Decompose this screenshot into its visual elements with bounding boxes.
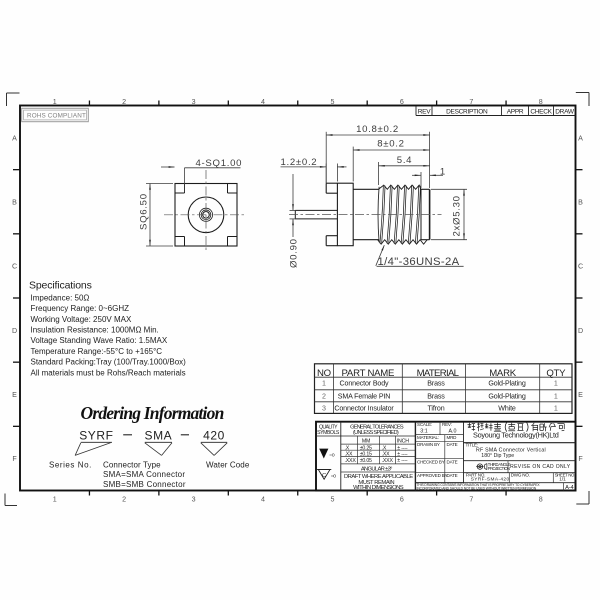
svg-text:SHEET NO.: SHEET NO. bbox=[555, 472, 575, 477]
svg-text:±0.15: ±0.15 bbox=[360, 451, 372, 457]
svg-text:Gold-Plating: Gold-Plating bbox=[488, 392, 526, 400]
svg-text:CHECKED BY: CHECKED BY bbox=[417, 459, 445, 464]
svg-text:Water Code: Water Code bbox=[206, 460, 250, 469]
svg-text:Standard Packing:Tray (100/Tra: Standard Packing:Tray (100/Tray.1000/Box… bbox=[31, 358, 187, 367]
svg-text:6: 6 bbox=[400, 496, 404, 504]
svg-text:=0: =0 bbox=[331, 473, 337, 479]
svg-text:D: D bbox=[12, 327, 17, 335]
svg-text:DRAWN BY: DRAWN BY bbox=[417, 442, 440, 447]
svg-text:.XXX: .XXX bbox=[382, 458, 394, 464]
svg-text:C: C bbox=[12, 263, 17, 271]
svg-text:APPR: APPR bbox=[507, 108, 524, 115]
svg-text:E: E bbox=[578, 391, 583, 399]
svg-text:A.0: A.0 bbox=[449, 429, 457, 435]
svg-text:REVISE ON CAD ONLY: REVISE ON CAD ONLY bbox=[510, 464, 571, 470]
svg-text:SMB=SMB Connector: SMB=SMB Connector bbox=[103, 480, 186, 489]
svg-text:8±0.2: 8±0.2 bbox=[377, 138, 404, 149]
svg-text:1: 1 bbox=[53, 496, 57, 504]
svg-text:Series No.: Series No. bbox=[49, 460, 92, 469]
svg-text:INCORPORATED AND SHOULD NOT BE: INCORPORATED AND SHOULD NOT BE USED WITH… bbox=[417, 487, 537, 491]
svg-text:SMA: SMA bbox=[144, 429, 172, 443]
svg-text:Gold-Plating: Gold-Plating bbox=[488, 380, 526, 388]
svg-text:MM: MM bbox=[362, 439, 370, 445]
svg-text:Connector Body: Connector Body bbox=[340, 380, 389, 388]
svg-text:REV:: REV: bbox=[442, 422, 452, 427]
svg-text:1: 1 bbox=[554, 380, 558, 388]
svg-text:10.8±0.2: 10.8±0.2 bbox=[356, 124, 399, 135]
svg-text:Connector Type: Connector Type bbox=[103, 460, 161, 469]
svg-text:ANGULAR ±3°: ANGULAR ±3° bbox=[361, 467, 392, 473]
svg-text:4: 4 bbox=[261, 496, 265, 504]
svg-text:2: 2 bbox=[122, 98, 126, 106]
svg-text:± ----: ± ---- bbox=[397, 458, 408, 464]
svg-text:5: 5 bbox=[330, 98, 334, 106]
svg-text:SMA Female PIN: SMA Female PIN bbox=[338, 392, 390, 400]
svg-text:Ordering Information: Ordering Information bbox=[81, 403, 224, 423]
svg-text:SYRF-SMA-420: SYRF-SMA-420 bbox=[471, 476, 510, 482]
svg-text:1.2±0.2: 1.2±0.2 bbox=[281, 157, 318, 168]
svg-text:7: 7 bbox=[469, 98, 473, 106]
svg-text:Insulation Resistance: 1000MΩ: Insulation Resistance: 1000MΩ Min. bbox=[31, 326, 159, 335]
svg-text:CHECK: CHECK bbox=[530, 108, 552, 115]
svg-text:F: F bbox=[578, 455, 583, 463]
svg-text:SMA=SMA Connector: SMA=SMA Connector bbox=[103, 470, 185, 479]
svg-text:2: 2 bbox=[322, 392, 326, 400]
svg-text:1: 1 bbox=[440, 167, 445, 178]
svg-text:APPROVED BY: APPROVED BY bbox=[417, 473, 448, 478]
svg-text:MRD: MRD bbox=[447, 435, 458, 440]
svg-text:SCALE:: SCALE: bbox=[417, 422, 432, 427]
svg-text:PART NAME: PART NAME bbox=[342, 368, 395, 379]
svg-text:5.4: 5.4 bbox=[397, 155, 412, 166]
svg-text:SYRF: SYRF bbox=[79, 429, 113, 443]
svg-text:Tifron: Tifron bbox=[427, 404, 444, 412]
svg-text:420: 420 bbox=[203, 429, 225, 443]
svg-text:NO: NO bbox=[317, 368, 331, 379]
svg-text:3: 3 bbox=[192, 496, 196, 504]
svg-text:1: 1 bbox=[322, 380, 326, 388]
svg-text:4: 4 bbox=[261, 98, 265, 106]
svg-text:D: D bbox=[578, 327, 583, 335]
svg-text:.XX: .XX bbox=[382, 451, 391, 457]
svg-text:Impedance: 50Ω: Impedance: 50Ω bbox=[31, 294, 90, 303]
svg-text:180° Dip Type: 180° Dip Type bbox=[481, 453, 514, 459]
svg-text:B: B bbox=[578, 198, 583, 206]
svg-text:2: 2 bbox=[122, 496, 126, 504]
svg-text:±0.25: ±0.25 bbox=[360, 445, 372, 451]
svg-text:DATE: DATE bbox=[447, 473, 458, 478]
svg-text:4-SQ1.00: 4-SQ1.00 bbox=[196, 158, 243, 169]
svg-text:8: 8 bbox=[539, 98, 543, 106]
svg-text:DRAFT WHERE APPLICABLE: DRAFT WHERE APPLICABLE bbox=[344, 474, 413, 480]
svg-text:Brass: Brass bbox=[427, 392, 445, 400]
svg-text:SQ6.50: SQ6.50 bbox=[139, 193, 150, 230]
svg-text:DRAW: DRAW bbox=[555, 108, 575, 115]
svg-text:5: 5 bbox=[330, 496, 334, 504]
svg-text:(UNLESS SPECIFIED): (UNLESS SPECIFIED) bbox=[353, 430, 399, 436]
svg-text:F: F bbox=[12, 455, 17, 463]
svg-text:DWG NO.: DWG NO. bbox=[511, 472, 530, 477]
svg-text:Connector Insulator: Connector Insulator bbox=[334, 404, 394, 412]
svg-text:C: C bbox=[322, 473, 326, 479]
svg-text:1: 1 bbox=[53, 98, 57, 106]
svg-text:1: 1 bbox=[554, 404, 558, 412]
svg-text:DESCRIPTION: DESCRIPTION bbox=[446, 108, 488, 115]
svg-text:Working Voltage: 250V MAX: Working Voltage: 250V MAX bbox=[31, 315, 132, 324]
svg-text:QUALITY: QUALITY bbox=[319, 425, 338, 431]
svg-text:2xØ5.30: 2xØ5.30 bbox=[452, 195, 463, 236]
svg-text:6: 6 bbox=[400, 98, 404, 106]
svg-text:ROHS COMPLIANT: ROHS COMPLIANT bbox=[27, 112, 86, 119]
svg-text:B: B bbox=[12, 198, 17, 206]
svg-text:Ø0.90: Ø0.90 bbox=[289, 238, 300, 268]
svg-text:MATERIAL:: MATERIAL: bbox=[417, 435, 439, 440]
svg-text:7: 7 bbox=[469, 496, 473, 504]
svg-text:=0: =0 bbox=[329, 453, 335, 459]
svg-text:±0.05: ±0.05 bbox=[360, 458, 372, 464]
svg-text:PART NO.: PART NO. bbox=[466, 472, 485, 477]
svg-text:8: 8 bbox=[539, 496, 543, 504]
svg-text:SYMBOLS: SYMBOLS bbox=[317, 430, 340, 436]
svg-text:MATERIAL: MATERIAL bbox=[417, 368, 460, 379]
svg-text:Brass: Brass bbox=[427, 380, 445, 388]
svg-text:White: White bbox=[498, 404, 516, 412]
svg-text:3: 3 bbox=[192, 98, 196, 106]
svg-text:.XX: .XX bbox=[345, 451, 354, 457]
svg-text:Temperature Range:-55°C to +16: Temperature Range:-55°C to +165°C bbox=[31, 347, 163, 356]
svg-text:C: C bbox=[578, 263, 583, 271]
svg-text:Soyoung Technology(HK)Ltd: Soyoung Technology(HK)Ltd bbox=[473, 431, 559, 440]
svg-text:A-4: A-4 bbox=[565, 485, 574, 491]
svg-text:RF SMA Connector Vertical: RF SMA Connector Vertical bbox=[476, 447, 546, 453]
svg-text:REV: REV bbox=[418, 108, 431, 115]
svg-text:3:1: 3:1 bbox=[420, 429, 427, 435]
svg-text:A: A bbox=[578, 134, 583, 142]
svg-text:± ----: ± ---- bbox=[397, 451, 408, 457]
svg-text:TITLE:: TITLE: bbox=[466, 443, 478, 448]
svg-text:PROJECTION: PROJECTION bbox=[488, 466, 510, 471]
svg-text:DATE: DATE bbox=[447, 459, 458, 464]
svg-text:1/1: 1/1 bbox=[559, 477, 566, 483]
svg-text:1: 1 bbox=[554, 392, 558, 400]
svg-text:1/4"-36UNS-2A: 1/4"-36UNS-2A bbox=[378, 256, 460, 268]
svg-text:QTY: QTY bbox=[546, 368, 566, 379]
svg-text:± ----: ± ---- bbox=[397, 445, 408, 451]
svg-text:Voltage Standing Wave Ratio: 1: Voltage Standing Wave Ratio: 1.5MAX bbox=[31, 336, 168, 345]
svg-text:3: 3 bbox=[322, 404, 326, 412]
svg-text:E: E bbox=[12, 391, 17, 399]
svg-text:Frequency Range: 0~6GHZ: Frequency Range: 0~6GHZ bbox=[31, 304, 130, 313]
svg-text:All materials must be Rohs/Rea: All materials must be Rohs/Reach materia… bbox=[31, 368, 186, 377]
svg-text:GENERAL TOLERANCES: GENERAL TOLERANCES bbox=[350, 425, 404, 431]
svg-text:MARK: MARK bbox=[489, 368, 517, 379]
svg-text:INCH: INCH bbox=[397, 439, 409, 445]
svg-text:A: A bbox=[12, 134, 17, 142]
svg-text:Specifications: Specifications bbox=[29, 280, 92, 292]
svg-text:.X: .X bbox=[382, 445, 387, 451]
svg-text:DATE: DATE bbox=[447, 442, 458, 447]
svg-text:.XXX: .XXX bbox=[345, 458, 357, 464]
svg-text:.X: .X bbox=[345, 445, 350, 451]
svg-text:WITHIN DIMENSIONS: WITHIN DIMENSIONS bbox=[353, 485, 404, 491]
